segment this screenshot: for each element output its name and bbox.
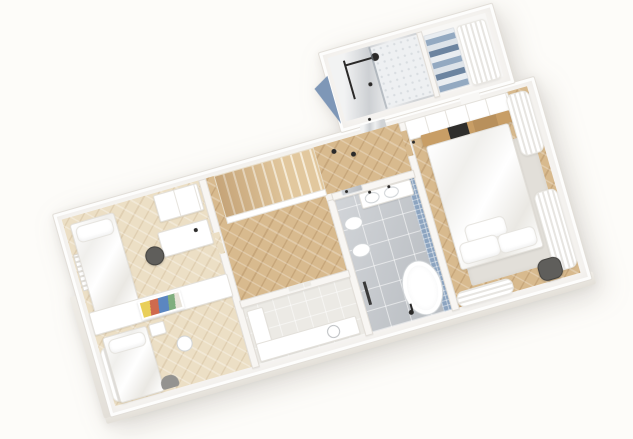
apartment-plan (26, 0, 591, 416)
floor-plan-render (0, 0, 633, 439)
